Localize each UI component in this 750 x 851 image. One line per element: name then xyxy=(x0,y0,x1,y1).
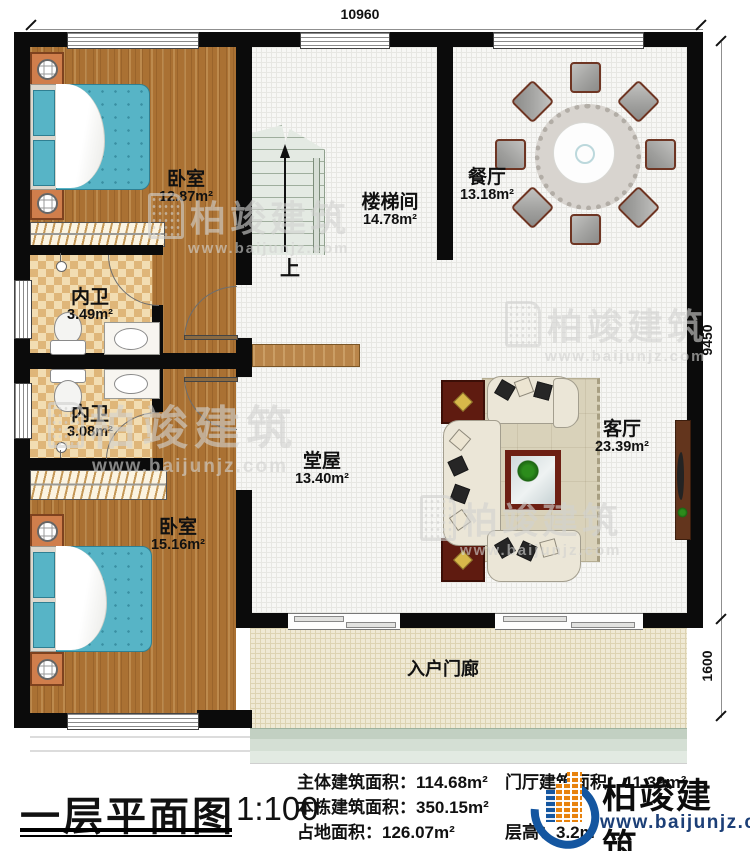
dimension-right-porch-label: 1600 xyxy=(699,645,715,687)
bed-pillow xyxy=(33,602,55,648)
wall-segment xyxy=(14,353,252,369)
room-label-porch: 入户门廊 xyxy=(407,660,479,678)
room-name: 堂屋 xyxy=(295,452,349,471)
wall-segment xyxy=(400,613,495,628)
stat-building-area: 本栋建筑面积：350.15m² xyxy=(297,793,489,818)
stair-up-label: 上 xyxy=(280,252,300,281)
sink-basin xyxy=(114,328,148,350)
window xyxy=(14,280,32,339)
room-label-living: 客厅 23.39m² xyxy=(595,420,649,456)
bed-pillow xyxy=(33,552,55,598)
sliding-door xyxy=(495,613,643,630)
room-area: 13.40m² xyxy=(295,471,349,488)
room-name: 内卫 xyxy=(67,405,113,424)
floor-plan: 上 xyxy=(0,0,750,851)
nightstand xyxy=(30,652,64,686)
brand-logo: 柏竣建筑 www.baijunjz.com xyxy=(528,760,748,848)
wall-segment xyxy=(197,710,252,728)
room-area: 23.39m² xyxy=(595,439,649,456)
sliding-door xyxy=(288,613,400,630)
wall-segment xyxy=(14,437,30,728)
sofa-top-chaise xyxy=(553,378,579,428)
room-label-hall: 堂屋 13.40m² xyxy=(295,452,349,488)
title-underline xyxy=(20,835,232,837)
brand-name: 柏竣建筑 xyxy=(602,768,748,851)
room-name: 内卫 xyxy=(67,288,113,307)
dimension-top-label: 10960 xyxy=(330,6,390,22)
brand-website: www.baijunjz.com xyxy=(600,812,750,834)
nightstand xyxy=(30,186,64,220)
room-area: 12.87m² xyxy=(159,189,213,206)
stair-direction-line xyxy=(284,156,286,252)
room-area: 14.78m² xyxy=(361,212,418,229)
walkway-line xyxy=(30,750,250,752)
ceiling-lamp-icon xyxy=(56,261,67,272)
room-name: 客厅 xyxy=(595,420,649,439)
room-area: 15.16m² xyxy=(151,537,205,554)
room-label-bedroom1: 卧室 12.87m² xyxy=(159,170,213,206)
plan-title: 一层平面图 xyxy=(20,784,235,842)
room-label-bath2: 内卫 3.08m² xyxy=(67,405,113,441)
plant xyxy=(515,458,541,484)
title-underline xyxy=(20,828,232,832)
wall-segment xyxy=(437,32,453,260)
room-label-dining: 餐厅 13.18m² xyxy=(460,168,514,204)
window xyxy=(67,713,199,730)
wall-segment xyxy=(14,32,30,280)
room-name: 卧室 xyxy=(151,518,205,537)
side-table xyxy=(441,380,485,424)
dining-table-center xyxy=(575,144,595,164)
room-name: 餐厅 xyxy=(460,168,514,187)
stat-land-area: 占地面积：126.07m² xyxy=(297,818,455,843)
wall-segment xyxy=(643,613,703,628)
window xyxy=(14,383,32,439)
brand-logo-icon xyxy=(530,768,598,842)
window xyxy=(67,32,199,49)
decor-star-icon xyxy=(453,550,473,570)
logo-building-small-icon xyxy=(546,790,555,822)
dimension-right-main-label: 9450 xyxy=(699,317,715,363)
room-area: 3.08m² xyxy=(67,424,113,441)
ceiling-lamp-icon xyxy=(56,442,67,453)
room-area: 13.18m² xyxy=(460,187,514,204)
bed-pillow xyxy=(33,90,55,136)
plant xyxy=(677,506,688,519)
sideboard xyxy=(252,344,360,367)
door-leaf xyxy=(184,335,238,340)
wall-segment xyxy=(236,490,252,628)
tv xyxy=(677,452,684,500)
dimension-line-top xyxy=(30,29,703,30)
porch-step xyxy=(250,739,687,751)
walkway-line xyxy=(30,736,250,738)
stair-rail xyxy=(313,158,320,253)
window xyxy=(300,32,390,49)
sink-basin xyxy=(114,374,148,394)
wall-segment xyxy=(197,32,300,47)
dining-chair xyxy=(570,62,601,93)
dining-chair xyxy=(570,214,601,245)
dining-chair xyxy=(645,139,676,170)
wall-segment xyxy=(14,245,163,255)
toilet-tank xyxy=(50,340,86,355)
room-name: 入户门廊 xyxy=(407,660,479,678)
door-leaf xyxy=(184,377,238,382)
lamp-cord xyxy=(60,450,61,458)
room-area: 3.49m² xyxy=(67,307,113,324)
nightstand xyxy=(30,514,64,548)
window xyxy=(493,32,644,49)
wall-segment xyxy=(236,47,252,285)
room-name: 卧室 xyxy=(159,170,213,189)
wall-segment xyxy=(14,458,163,470)
wardrobe-hatch-1 xyxy=(30,222,165,247)
bed-pillow xyxy=(33,140,55,186)
stat-main-area: 主体建筑面积：114.68m² xyxy=(297,768,488,793)
nightstand xyxy=(30,52,64,86)
dining-chair xyxy=(495,139,526,170)
wall-segment xyxy=(14,713,67,728)
room-name: 楼梯间 xyxy=(361,193,418,212)
room-label-bath1: 内卫 3.49m² xyxy=(67,288,113,324)
room-label-bedroom2: 卧室 15.16m² xyxy=(151,518,205,554)
wardrobe-hatch-2 xyxy=(30,470,167,500)
decor-star-icon xyxy=(453,392,473,412)
room-label-stairwell: 楼梯间 14.78m² xyxy=(361,193,418,229)
